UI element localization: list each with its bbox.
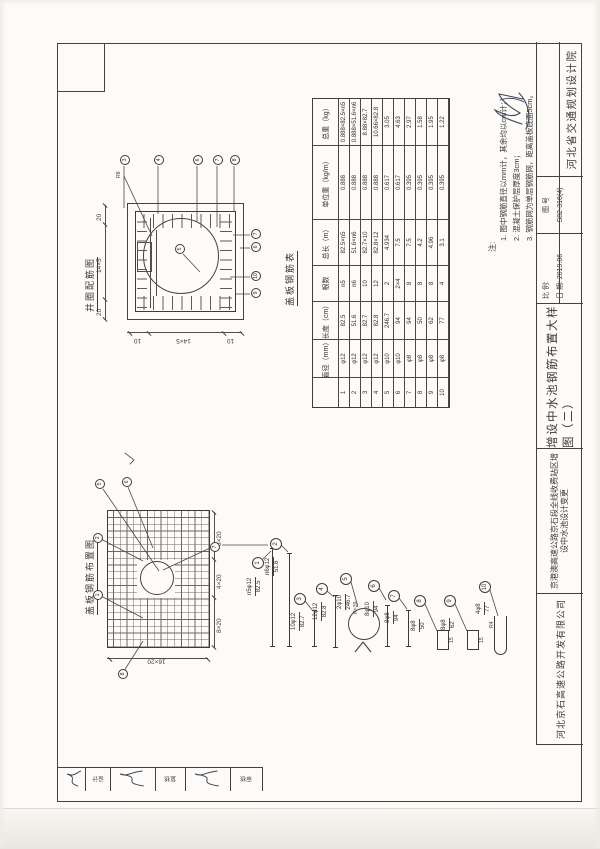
rebar-table-cell: 82.8 — [372, 301, 383, 339]
rebar-table-cell: 8 — [405, 265, 416, 301]
shape-extra-dim: R4 — [489, 621, 495, 628]
dim-label: 14×5 — [96, 258, 103, 273]
dim-label: 16×20 — [147, 657, 165, 664]
shape-label-1: n5φ1282.5 — [247, 577, 263, 596]
signature-cell: 设计 — [85, 768, 111, 791]
drawing-element — [240, 331, 245, 336]
callout-circle: 3 — [294, 593, 306, 605]
rebar-table-header: 总长（m） — [313, 219, 339, 265]
dim-label: 10 — [227, 337, 234, 344]
callout-circle: 7 — [388, 590, 400, 602]
rebar-table-cell: 1.95 — [427, 99, 438, 145]
rebar-table-cell: 51.6×n6 — [350, 219, 361, 265]
drawing-element — [195, 771, 219, 786]
rebar-table-cell: 4.934 — [383, 219, 394, 265]
title-block-drawing-title-cell: 增设中水池钢筋布置大样图（二） — [537, 304, 583, 449]
drawing-sheet: 设计复核审核 河北京石高速公路开发有限公司 京港澳高速公路京石段全线收费站区增 … — [0, 0, 600, 848]
title-block-project-cell: 京港澳高速公路京石段全线收费站区增 设中水池设计变更 — [537, 449, 583, 594]
drawing-element — [214, 512, 215, 648]
rebar-table: 直径（mm）长度（cm）根数总长（m）单位重（kg/m）总重（kg）1φ1282… — [312, 98, 450, 408]
handwritten-signature — [110, 768, 155, 791]
rebar-table-cell: 8 — [416, 265, 427, 301]
shape-bar-7 — [408, 610, 409, 647]
rebar-table-cell: 3.05 — [383, 99, 394, 145]
shape-length: 51.6 — [274, 557, 282, 576]
rebar-table-cell: φ8 — [405, 339, 416, 377]
rebar-table-cell: 94 — [394, 301, 405, 339]
shape-stirrup-8 — [437, 630, 449, 650]
rebar-table-cell: 0.395 — [427, 145, 438, 219]
note-item: 3. 钢筋网为单层钢筋网，距离盖板底面5cm。 — [524, 91, 535, 241]
rebar-table-cell: 2.97 — [405, 99, 416, 145]
frame-corner-box — [57, 43, 105, 92]
shape-label-4: 12φ1282.8 — [313, 602, 329, 621]
rebar-table-cell: 77 — [438, 301, 449, 339]
project-name-line1: 京港澳高速公路京石段全线收费站区增 — [550, 453, 560, 589]
rebar-table-cell: φ8 — [438, 339, 449, 377]
rebar-table-cell: n5 — [339, 265, 350, 301]
signature-cell — [185, 768, 231, 791]
rebar-table-cell: 0.888×82.5×n5 — [339, 99, 350, 145]
rebar-table-header — [313, 377, 339, 407]
dim-label: 4×20 — [216, 574, 223, 589]
drawing-element: 京港澳高速公路京石段全线收费站区增 设中水池设计变更 — [537, 449, 583, 593]
rebar-table-cell: φ12 — [350, 339, 361, 377]
collar-opening-circle — [143, 218, 219, 294]
rebar-table-cell: 82.7×10 — [361, 219, 372, 265]
rebar-table-cell: 0.888 — [350, 145, 361, 219]
rebar-table-cell: 6 — [394, 377, 405, 407]
signature-cell — [110, 768, 156, 791]
callout-circle: 8 — [414, 595, 426, 607]
collar-rebar-band-right — [140, 214, 230, 228]
rebar-table-cell: 5 — [383, 377, 394, 407]
rebar-table-cell: 0.395 — [416, 145, 427, 219]
shape-label-3: 10φ1282.7 — [291, 612, 307, 631]
collar-dim-left: 10 14×5 10 — [127, 330, 242, 342]
note-item: 2. 混凝土保护层厚度3cm； — [511, 151, 522, 241]
rebar-table-cell: 8.88×82.7 — [361, 99, 372, 145]
rebar-table-cell: 10 — [438, 377, 449, 407]
shape-mark: 10φ12 — [291, 612, 300, 631]
rebar-table-cell: 4.63 — [394, 99, 405, 145]
scanned-drawing-page: { "colors": {"paper":"#fcfbf7","line":"#… — [0, 0, 600, 848]
rebar-table-cell: 7.5 — [405, 219, 416, 265]
callout-circle: 10 — [479, 581, 491, 593]
company-name: 河北京石高速公路开发有限公司 — [537, 594, 583, 744]
collar-rebar-band-bottom — [220, 217, 232, 308]
rebar-table-cell: φ8 — [427, 339, 438, 377]
rebar-table-cell: 3 — [361, 377, 372, 407]
shape-mark: 8φ8 — [385, 611, 394, 624]
slab-dim-left: 16×20 — [107, 654, 208, 666]
signature-cell: 审核 — [230, 768, 263, 791]
shape-mark: 12φ12 — [313, 602, 322, 621]
rebar-table-cell: φ12 — [339, 339, 350, 377]
rebar-table-cell: 94 — [405, 301, 416, 339]
rebar-table-cell: 1 — [339, 377, 350, 407]
shape-length: 94 — [394, 611, 402, 624]
rebar-table-cell: φ10 — [394, 339, 405, 377]
rebar-table-cell: 1.22 — [438, 99, 449, 145]
institute-name: 河北省交通规划设计院 — [560, 42, 583, 177]
signature-label: 设计 — [91, 775, 103, 784]
shape-length: 246.7 — [346, 594, 354, 610]
shape-length: 62 — [450, 618, 458, 631]
shape-length: 77 — [485, 602, 493, 615]
shape-length: 82.8 — [322, 602, 330, 621]
shape-mark: n6φ12 — [265, 557, 274, 576]
rebar-table-cell: 4.96 — [427, 219, 438, 265]
shape-label-5: 2φ10246.7 — [337, 594, 353, 610]
rebar-table-cell: 10.66×82.8 — [372, 99, 383, 145]
rebar-table-header: 根数 — [313, 265, 339, 301]
rebar-table-cell: 8 — [416, 377, 427, 407]
signature-label: 复核 — [164, 775, 176, 784]
rebar-table-cell: 4.2 — [416, 219, 427, 265]
rebar-table-header: 总重（kg） — [313, 99, 339, 145]
rebar-table-cell: φ10 — [383, 339, 394, 377]
rebar-table-cell: 7.5 — [394, 219, 405, 265]
shape-mark: 8φ8 — [441, 618, 450, 631]
drawing-element — [105, 205, 106, 320]
rebar-table-cell: 0.617 — [394, 145, 405, 219]
rebar-table-cell: 82.5×n5 — [339, 219, 350, 265]
callout-circle: 9 — [444, 595, 456, 607]
rebar-table-cell: 0.888 — [361, 145, 372, 219]
note-item: 1. 图中钢筋直径以mm计，其余均以cm计； — [498, 98, 509, 241]
signature-cell — [57, 768, 86, 791]
rebar-table-header: 直径（mm） — [313, 339, 339, 377]
title-block-company-cell: 河北京石高速公路开发有限公司 — [537, 594, 583, 744]
rebar-table-cell: 50 — [416, 301, 427, 339]
rebar-table-cell: 0.888 — [339, 145, 350, 219]
project-name-line2: 设中水池设计变更 — [560, 489, 570, 553]
rebar-table-header: 单位重（kg/m） — [313, 145, 339, 219]
shape-length: 82.5 — [256, 577, 264, 596]
drawing-element — [120, 771, 144, 786]
handwritten-signature — [57, 768, 85, 791]
rebar-table-cell: 0.395 — [405, 145, 416, 219]
shape-length: 50 — [420, 619, 428, 632]
shape-length: 82.7 — [300, 612, 308, 631]
rebar-table-cell: 2 — [350, 377, 361, 407]
rebar-table-cell: 82.8×12 — [372, 219, 383, 265]
collar-dim-top: 20 14×5 20 — [96, 205, 108, 320]
rebar-table-cell: 1.58 — [416, 99, 427, 145]
dim-label: 10 — [134, 337, 141, 344]
scale-label: 比 例: — [537, 234, 552, 303]
rebar-table-cell: 4 — [438, 265, 449, 301]
rebar-table-cell: 82.5 — [339, 301, 350, 339]
rebar-table-title: 盖板钢筋表 — [283, 251, 298, 306]
notes-label: 注: — [487, 242, 498, 252]
shape-extra-dim: R=39 — [353, 601, 359, 614]
shape-mark: 2φ10 — [337, 594, 346, 610]
rebar-table-cell: 12 — [372, 265, 383, 301]
rebar-table-cell: 0.395 — [438, 145, 449, 219]
slab-diagram-title: 盖板钢筋布置图 — [83, 538, 98, 615]
dim-label: 14×5 — [176, 337, 191, 344]
callout-circle: 2 — [270, 538, 282, 550]
signature-cell: 复核 — [155, 768, 186, 791]
rebar-table-cell: 0.888 — [372, 145, 383, 219]
slab-opening-circle — [140, 561, 174, 595]
rebar-table-cell: 2 — [383, 265, 394, 301]
slab-dim-bottom: 8×20 4×20 8×20 — [211, 512, 223, 648]
title-block-figure-cell: 图 号 S82-316(4) — [537, 177, 583, 234]
shape-label-7: 8φ894 — [385, 611, 401, 624]
collar-bent-bar-notch — [137, 242, 152, 272]
collar-bar-line — [156, 230, 157, 296]
rebar-table-header: 长度（cm） — [313, 301, 339, 339]
figure-number-label: 图 号 — [537, 177, 552, 233]
rebar-table-cell: 0.888×51.6×n6 — [350, 99, 361, 145]
shape-length: 94 — [374, 601, 382, 617]
shape-extra-dim: 15 — [479, 637, 485, 643]
shape-label-2: n6φ1251.6 — [265, 557, 281, 576]
shape-extra-dim: 15 — [449, 637, 455, 643]
rebar-table-cell: 2×4 — [394, 265, 405, 301]
rebar-table-cell: 3.1 — [438, 219, 449, 265]
collar-side-label: R8 — [116, 171, 122, 178]
shape-label-8: 8φ850 — [411, 619, 427, 632]
signature-label: 审核 — [240, 775, 252, 784]
rebar-table-cell: n6 — [350, 265, 361, 301]
title-block: 河北京石高速公路开发有限公司 京港澳高速公路京石段全线收费站区增 设中水池设计变… — [536, 42, 583, 745]
rebar-table-cell: 8 — [427, 265, 438, 301]
signature-strip: 设计复核审核 — [57, 767, 263, 791]
shape-label-10: 4φ877 — [476, 602, 492, 615]
callout-circle: 5 — [340, 573, 352, 585]
shape-mark: 8φ10 — [365, 601, 374, 617]
rebar-table-cell: φ12 — [361, 339, 372, 377]
drawing-element — [206, 657, 211, 662]
title-block-scale-cell: 比 例: 日 期: 2019.06 — [537, 234, 583, 304]
shape-ubar-10 — [494, 616, 507, 655]
shape-mark: n5φ12 — [247, 577, 256, 596]
drawing-element — [67, 771, 81, 786]
rebar-table-cell: 0.617 — [383, 145, 394, 219]
rebar-table-cell: 62 — [427, 301, 438, 339]
shape-mark: 8φ8 — [411, 619, 420, 632]
callout-circle: 1 — [252, 557, 264, 569]
drawing-title: 增设中水池钢筋布置大样图（二） — [537, 304, 583, 448]
dim-label: 20 — [96, 309, 103, 316]
rebar-table-cell: 9 — [427, 377, 438, 407]
rebar-table-cell: φ12 — [372, 339, 383, 377]
dim-label: 20 — [96, 214, 103, 221]
shape-label-6: 8φ1094 — [365, 601, 381, 617]
callout-circle: 4 — [316, 583, 328, 595]
shape-bar-2 — [289, 553, 290, 647]
shape-mark: 4φ8 — [476, 602, 485, 615]
rebar-table-cell: 7 — [405, 377, 416, 407]
callout-circle: 6 — [368, 580, 380, 592]
rebar-table-cell: 4 — [372, 377, 383, 407]
rebar-table-cell: 51.6 — [350, 301, 361, 339]
rebar-table-cell: 82.7 — [361, 301, 372, 339]
rebar-table-cell: φ8 — [416, 339, 427, 377]
shape-label-9: 8φ862 — [441, 618, 457, 631]
rebar-table-cell: 10 — [361, 265, 372, 301]
collar-rebar-band-left — [140, 296, 230, 310]
handwritten-signature — [185, 768, 230, 791]
dim-label: 8×20 — [216, 618, 223, 633]
shape-stirrup-9 — [467, 630, 479, 650]
rebar-table-cell: 246.7 — [383, 301, 394, 339]
